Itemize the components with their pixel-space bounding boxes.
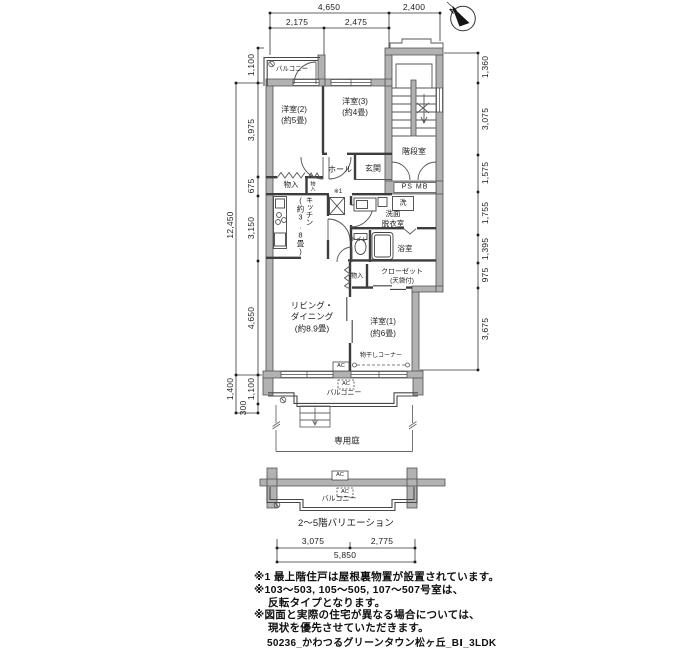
dim-left-675: 675 (246, 179, 256, 194)
bedroom1-label: 洋室(1) (370, 318, 396, 326)
dim-left-1100-bottom: 1,100 (246, 378, 256, 400)
entry-door-left (392, 162, 410, 180)
floor-plan-page: N バルコニー 洋室(2) (約5畳) 洋室(3) (約4畳) 階段室 ホール … (0, 0, 700, 650)
entry-door-right (418, 162, 436, 180)
living-label-2: ダイニング (291, 313, 334, 322)
fence-break-mark (273, 422, 417, 430)
dim-right-1575: 1,575 (480, 162, 490, 184)
dim-right-3075: 3,075 (480, 108, 490, 130)
ac-label: AC (336, 473, 344, 479)
drain-slash (270, 62, 274, 66)
hall-label: ホール (328, 166, 352, 174)
kitchen-size: (約3.8畳) (296, 196, 305, 256)
kitchen-door (328, 219, 350, 241)
drain-slash (281, 398, 285, 402)
burner (277, 213, 282, 218)
dim-left-1400: 1,400 (225, 378, 235, 400)
note-line-1: ※1 最上階住戸は屋根裏物置が設置されています。 (254, 571, 499, 584)
ps-mb-label: PS MB (402, 183, 429, 190)
bedroom1-size: (約6畳) (370, 330, 396, 338)
dim-left-12450: 12,450 (225, 211, 235, 238)
living-label-1: リビング・ (291, 302, 334, 311)
living-size: (約8.9畳) (295, 325, 329, 334)
note-line-4: ※図面と実際の住宅が異なる場合については、 (254, 609, 499, 622)
interior-walls (266, 86, 436, 371)
note-line-3: 反転タイプとなります。 (254, 597, 499, 610)
dim-left-300: 300 (238, 401, 248, 416)
storage-mid-label: 物入 (351, 274, 364, 281)
closet-note: (天袋付) (390, 279, 414, 286)
end-dot (406, 363, 410, 367)
end-dot (353, 363, 357, 367)
dim-left-3150: 3,150 (246, 217, 256, 239)
dim-top-2175: 2,175 (286, 17, 308, 27)
bedroom3-label: 洋室(3) (342, 98, 368, 106)
toilet-label: トイレ (351, 238, 368, 244)
kitchen-appliance (275, 233, 286, 246)
drawing-caption: 50236_かわつるグリーンタウン松ヶ丘_BⅠ_3LDK (267, 634, 496, 649)
ac-label: AC (337, 364, 345, 370)
dim-right-1360: 1,360 (480, 56, 490, 78)
storage-small-label: 物入 (310, 181, 317, 191)
balcony-top-label: バルコニー (276, 67, 308, 74)
stair-parapet (390, 39, 443, 48)
laundry-corner-label: 物干しコーナー (360, 353, 402, 359)
garden-label: 専用庭 (334, 437, 360, 446)
laundry-corner-mark (353, 363, 410, 367)
bedroom2-label: 洋室(2) (281, 106, 307, 114)
dim-right-1755: 1,755 (480, 202, 490, 224)
stair-direction-arrow (417, 94, 429, 123)
water-heater-box (378, 198, 387, 207)
burner (276, 220, 281, 225)
laundry-pan-label: 洗 (400, 199, 407, 206)
washroom-label-2: 脱衣室 (382, 220, 405, 228)
dim-left-3975: 3,975 (246, 119, 256, 141)
burner (282, 218, 287, 223)
dim-right-1395: 1,395 (480, 238, 490, 260)
stairwell-label: 階段室 (402, 148, 426, 156)
balcony-main-label: バルコニー (327, 389, 362, 396)
dim-bottom-3075: 3,075 (302, 536, 324, 546)
dim-top-2400: 2,400 (403, 2, 425, 12)
dim-top-4650: 4,650 (318, 2, 340, 12)
variation-label: 2〜5階バリエーション (298, 519, 394, 529)
ac-label: AC (342, 382, 350, 388)
dim-bottom-2775: 2,775 (371, 536, 393, 546)
vanity-bowl (357, 201, 368, 209)
dim-right-975: 975 (480, 268, 490, 283)
bath-folding-door (404, 229, 416, 234)
dim-bottom-5850: 5,850 (334, 550, 356, 560)
closet-label: クローゼット (381, 268, 423, 275)
kitchen-sink (276, 199, 285, 208)
entrance-label: 玄関 (365, 165, 381, 173)
bedroom2-size: (約5畳) (281, 117, 307, 125)
garden-step-arrow (313, 408, 318, 426)
dim-left-4650: 4,650 (246, 307, 256, 329)
bedroom2-door (301, 157, 323, 179)
kitchen-label: キッチン (305, 196, 314, 226)
dim-left-1100-top: 1,100 (246, 54, 256, 76)
ref1-mark: ※1 (334, 189, 342, 195)
note-line-2: ※103〜503, 105〜505, 107〜507号室は、 (254, 584, 499, 597)
dim-right-3675: 3,675 (480, 318, 490, 340)
kitchen-label-block: キッチン(約3.8畳) (296, 196, 314, 256)
washroom-label-1: 洗面 (386, 210, 401, 218)
footnotes: ※1 最上階住戸は屋根裏物置が設置されています。 ※103〜503, 105〜5… (254, 571, 499, 635)
bedroom3-size: (約4畳) (342, 109, 368, 117)
balcony-lower-label: バルコニー (322, 495, 357, 502)
dim-top-2475: 2,475 (345, 17, 367, 27)
bathtub-inner (375, 235, 391, 257)
bath-label: 浴室 (398, 245, 413, 253)
storage-left-label: 物入 (284, 181, 299, 189)
